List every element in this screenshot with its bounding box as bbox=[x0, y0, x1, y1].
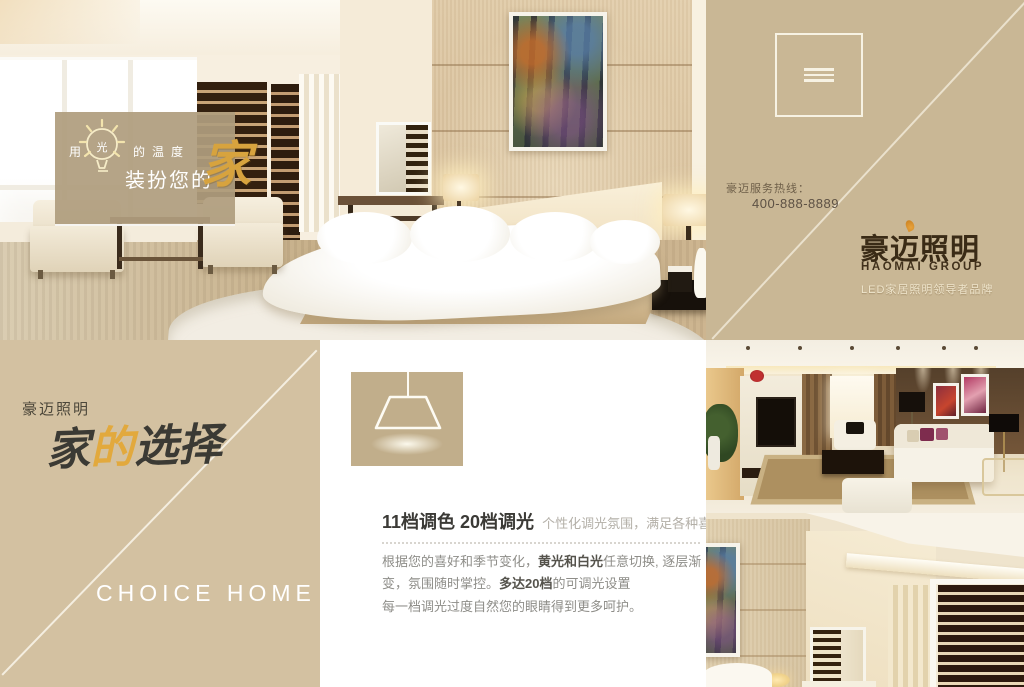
logo-tagline: LED家居照明领导者品牌 bbox=[861, 281, 993, 297]
feature-heading: 11档调色 20档调光个性化调光氛围，满足各种喜好 bbox=[382, 508, 702, 534]
calligraphy-char: 选择 bbox=[133, 419, 223, 473]
ceiling-warm-light bbox=[0, 0, 140, 44]
hamburger-menu-icon bbox=[804, 74, 834, 77]
english-title: CHOICE HOME bbox=[96, 580, 316, 607]
table-leg bbox=[198, 223, 203, 269]
dark-throw bbox=[846, 422, 864, 434]
wall-spotlight-glow bbox=[914, 368, 932, 394]
bedside-lamp bbox=[663, 194, 706, 226]
mirror bbox=[376, 122, 431, 195]
brand-panel: 豪迈服务热线： 400-888-8889 豪迈照明 HAOMAI GROUP L… bbox=[706, 0, 1024, 340]
hero-bedroom-photo: 用 光 的温度 bbox=[0, 0, 706, 340]
television bbox=[756, 397, 796, 447]
brand-name: 豪迈照明 bbox=[22, 398, 90, 419]
feature-title: 11档调色 20档调光 bbox=[382, 512, 534, 532]
calligraphy-title: 家的选择 bbox=[45, 419, 223, 478]
mirror-reflection bbox=[813, 630, 841, 687]
feature-panel: 11档调色 20档调光个性化调光氛围，满足各种喜好 根据您的喜好和季节变化，黄光… bbox=[320, 340, 706, 687]
slogan-home-calligraphy: 家 bbox=[201, 140, 251, 190]
duvet-fold bbox=[510, 212, 600, 262]
floor-lamp-shade bbox=[989, 414, 1019, 432]
choice-home-panel: 豪迈照明 家的选择 CHOICE HOME bbox=[0, 340, 320, 687]
floor-lamp-shade bbox=[899, 392, 925, 412]
calligraphy-char: 家 bbox=[45, 424, 91, 477]
chair-leg bbox=[208, 265, 213, 274]
para-bold: 多达20档 bbox=[499, 576, 552, 591]
glass-side-table bbox=[982, 458, 1024, 496]
table-shelf bbox=[119, 257, 203, 261]
slogan-line2: 装扮您的 bbox=[125, 164, 213, 193]
bed-duvet bbox=[262, 208, 662, 322]
para-seg: 的可调光设置 bbox=[552, 576, 630, 591]
hotline-label: 豪迈服务热线： bbox=[726, 180, 810, 196]
duvet-fold bbox=[410, 206, 510, 262]
logo-english: HAOMAI GROUP bbox=[861, 261, 984, 273]
chair-leg bbox=[110, 270, 115, 279]
slogan-bulb-char: 光 bbox=[95, 139, 109, 155]
calligraphy-char-gold: 的 bbox=[89, 422, 135, 475]
pendant-lamp-icon bbox=[351, 372, 463, 466]
desk bbox=[338, 196, 444, 205]
ceiling-spotlights bbox=[746, 346, 750, 350]
feature-paragraph: 根据您的喜好和季节变化，黄光和白光任意切换, 逐层渐变，氛围随时掌控。多达20档… bbox=[382, 551, 704, 618]
living-room-photo bbox=[706, 340, 1024, 513]
white-bedding bbox=[706, 663, 772, 687]
window-blinds bbox=[938, 585, 1024, 687]
chair-leg bbox=[272, 265, 277, 274]
hamburger-menu-icon bbox=[804, 68, 834, 71]
hamburger-menu-button[interactable] bbox=[775, 33, 863, 117]
red-flowers bbox=[750, 370, 764, 382]
paragraph-line-2: 每一档调光过度自然您的眼睛得到更多呵护。 bbox=[382, 596, 704, 618]
nightstand-item bbox=[668, 266, 692, 292]
coffee-table bbox=[822, 450, 884, 474]
wall-painting bbox=[509, 12, 607, 151]
chair-leg bbox=[38, 270, 43, 279]
dresser-top bbox=[802, 681, 876, 687]
duvet-fold bbox=[590, 220, 660, 264]
vase bbox=[694, 248, 706, 298]
mirror bbox=[810, 627, 866, 687]
slogan-suffix: 的温度 bbox=[133, 143, 190, 160]
duvet-fold bbox=[317, 212, 412, 264]
dotted-divider bbox=[382, 542, 700, 544]
plant-vase bbox=[708, 436, 720, 470]
paragraph-line-1: 根据您的喜好和季节变化，黄光和白光任意切换, 逐层渐变，氛围随时掌控。多达20档… bbox=[382, 551, 704, 596]
hamburger-menu-icon bbox=[804, 79, 834, 82]
ottoman bbox=[842, 478, 912, 513]
sofa-pillow bbox=[907, 430, 919, 442]
pleated-curtain bbox=[888, 585, 936, 687]
hero-slogan-overlay: 用 光 的温度 bbox=[55, 112, 235, 226]
para-bold: 黄光和白光 bbox=[538, 554, 603, 569]
feature-subtitle: 个性化调光氛围，满足各种喜好 bbox=[542, 516, 706, 531]
wall-lamp bbox=[443, 174, 479, 201]
armchair-seat bbox=[201, 223, 283, 267]
table-leg bbox=[117, 223, 122, 269]
bedroom-detail-photo bbox=[706, 513, 1024, 687]
hotline-number: 400-888-8889 bbox=[752, 196, 839, 211]
wall-art-frame bbox=[933, 383, 959, 419]
white-sofa bbox=[894, 424, 994, 482]
wall-art-frame bbox=[961, 374, 989, 416]
sofa-pillow bbox=[936, 428, 948, 440]
armchair-seat bbox=[30, 226, 124, 272]
mirror-reflection bbox=[406, 125, 428, 192]
wall-painting bbox=[706, 543, 740, 657]
curtain-left bbox=[802, 374, 832, 462]
para-seg: 根据您的喜好和季节变化， bbox=[382, 554, 538, 569]
sofa-pillow bbox=[920, 428, 934, 441]
page-canvas: 用 光 的温度 bbox=[0, 0, 1024, 687]
